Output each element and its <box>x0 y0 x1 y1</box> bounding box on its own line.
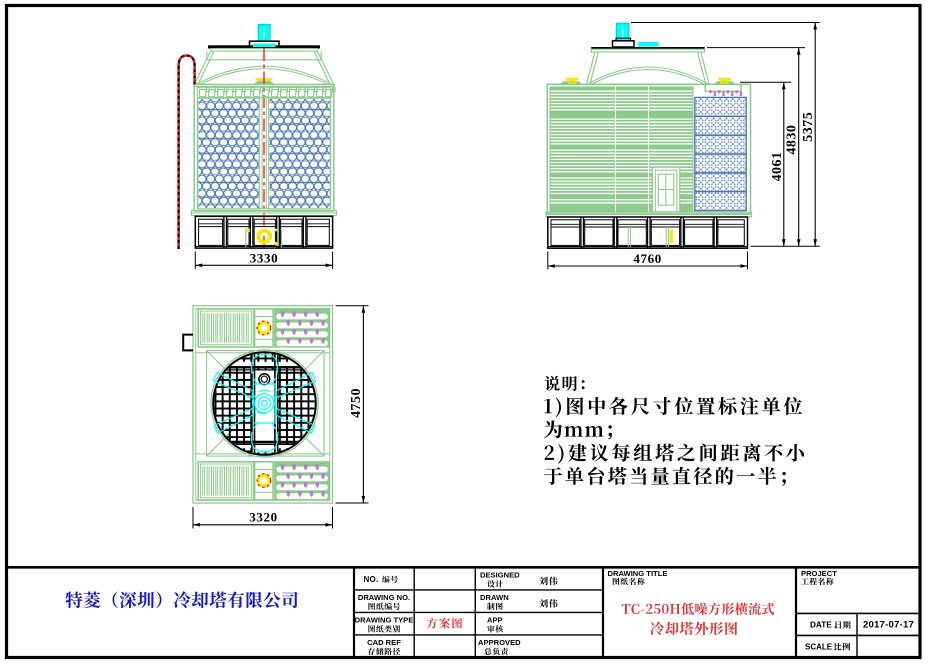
svg-text:APP: APP <box>487 615 503 624</box>
svg-text:CAD REF: CAD REF <box>367 638 401 647</box>
svg-text:2017-07-17: 2017-07-17 <box>863 619 914 630</box>
svg-text:DRAWN: DRAWN <box>480 593 509 602</box>
svg-text:DRAWING TITLE: DRAWING TITLE <box>608 569 668 578</box>
svg-text:NO.: NO. <box>363 575 378 584</box>
svg-text:DATE .: DATE . <box>810 621 836 630</box>
svg-text:4750: 4750 <box>349 388 364 418</box>
svg-text:4830: 4830 <box>785 125 800 155</box>
svg-text:4061: 4061 <box>770 152 785 182</box>
svg-text:PROJECT: PROJECT <box>801 569 837 578</box>
svg-text:3330: 3330 <box>250 250 278 265</box>
svg-text:3320: 3320 <box>249 510 277 525</box>
svg-text:4760: 4760 <box>633 251 661 266</box>
svg-text:APPROVED: APPROVED <box>478 638 521 647</box>
svg-text:DRAWING NO.: DRAWING NO. <box>358 593 410 602</box>
svg-text:5375: 5375 <box>801 112 816 142</box>
svg-text:SCALE: SCALE <box>805 642 833 651</box>
svg-text:DESIGNED: DESIGNED <box>480 570 520 579</box>
svg-text:DRAWING TYPE: DRAWING TYPE <box>355 615 414 624</box>
